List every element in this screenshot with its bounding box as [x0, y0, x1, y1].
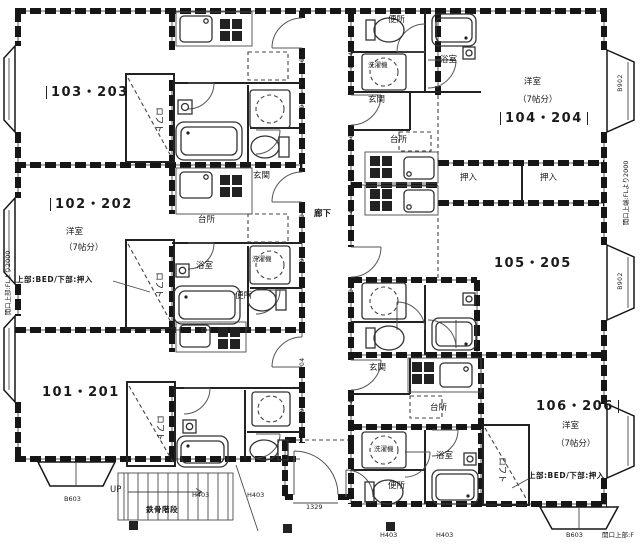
bathroom-label: 浴室 [436, 452, 453, 461]
bathtub [432, 318, 476, 350]
bathtub [177, 436, 228, 467]
foundation-post [283, 524, 292, 533]
opening-dim-0904: 0904 [300, 357, 306, 374]
unit-label-102-202: 102・202 [50, 198, 133, 211]
washing-machine [362, 283, 406, 319]
loft-label: ロフト [154, 107, 163, 133]
bathroom-label: 浴室 [440, 56, 457, 65]
opening-dim-0904: 0904 [349, 284, 355, 301]
bathroom-label: 浴室 [196, 262, 213, 271]
door-dim-h403: H403 [380, 532, 397, 539]
toilet-label: 便所 [388, 16, 405, 25]
bottom-right-note: 開口上部:F [602, 532, 634, 539]
bathtub [176, 122, 242, 160]
unit-label-101-201: 101・201 [42, 386, 120, 399]
toilet-label: 便所 [235, 292, 252, 301]
kitchen-sink [404, 157, 434, 179]
washing-machine [362, 54, 406, 90]
washer-label: 洗濯機 [252, 256, 272, 263]
water-heater [463, 47, 475, 59]
room-type-104: 洋室 [524, 78, 541, 87]
door-dim-h403: H403 [192, 492, 209, 499]
opening-dim-0904: 0904 [300, 399, 306, 416]
opening-dim-0904: 0904 [349, 209, 355, 226]
loft-label: ロフト [154, 272, 163, 298]
balcony-dim-b603: B603 [64, 496, 81, 503]
entry-width-1329: 1329 [306, 504, 323, 511]
opening-dim-0904: 0904 [349, 436, 355, 453]
stairs-label: 鉄骨階段 [146, 506, 178, 514]
kitchen-sink [180, 172, 212, 198]
water-heater [463, 293, 475, 305]
opening-dim-0904: 0904 [349, 129, 355, 146]
room-type-106: 洋室 [562, 422, 579, 431]
room-size-104: （7帖分） [518, 96, 557, 105]
right-wall-note: 開口上端:FLより2000 [623, 161, 630, 226]
opening-dim-0904: 0904 [349, 51, 355, 68]
stove [412, 362, 434, 384]
unit-label-105-205: 105・205 [494, 257, 572, 270]
opening-dim-0904: 0904 [300, 53, 306, 70]
opening-dim-0904: 0904 [300, 91, 306, 108]
water-heater [464, 453, 476, 465]
washing-machine [252, 392, 290, 426]
washer-label: 洗濯機 [374, 446, 394, 453]
washing-machine [250, 90, 290, 128]
door-dim-h403: H403 [436, 532, 453, 539]
wash-basin [178, 100, 192, 114]
opening-dim-0904: 0904 [300, 209, 306, 226]
unit-label-103-203: 103・203 [46, 86, 129, 99]
stove [370, 189, 392, 211]
room-size-106: （7帖分） [556, 440, 595, 449]
room-size-102: （7帖分） [64, 244, 103, 253]
washing-machine [250, 246, 290, 284]
entrance-label: 玄関 [253, 172, 270, 181]
corridor-label: 廊下 [314, 210, 331, 219]
balcony-dim-b603: B603 [566, 532, 583, 539]
unit-label-104-204: 104・204 [500, 112, 588, 125]
closet-label: 押入 [460, 174, 477, 183]
loft-note-106: 上部:BED/下部:押入 [528, 472, 605, 480]
loft-note-102: 上部:BED/下部:押入 [16, 276, 93, 284]
loft-label: ロフト [155, 415, 164, 441]
bathtub [174, 286, 240, 324]
stove [370, 156, 392, 178]
closet-label: 押入 [540, 174, 557, 183]
left-wall-note: 開口上部:FLより2000 [5, 251, 12, 316]
loft-label: ロフト [497, 457, 506, 483]
up-arrow [128, 489, 202, 496]
stairs-up-label: UP [110, 486, 121, 495]
opening-dim-0904: 0904 [300, 249, 306, 266]
kitchen-sink [440, 363, 472, 387]
washer-label: 洗濯機 [368, 62, 388, 69]
stove [220, 175, 242, 197]
window-dim-b902: B902 [618, 74, 624, 92]
entrance-label: 玄関 [368, 96, 385, 105]
entrance-label: 玄関 [369, 364, 386, 373]
room-type-102: 洋室 [66, 228, 83, 237]
kitchen-label: 台所 [430, 404, 447, 413]
bathtub [432, 470, 478, 504]
opening-dim-0904: 0904 [349, 399, 355, 416]
toilet-label: 便所 [388, 482, 405, 491]
kitchen-label: 台所 [390, 136, 407, 145]
floor-plan-sheet: 103・203 102・202 101・201 104・204 105・205 … [0, 0, 644, 545]
floor-plan-drawing [0, 0, 644, 545]
door-dim-h403: H403 [247, 492, 264, 499]
partitions [172, 11, 522, 504]
foundation-post [386, 522, 395, 531]
kitchen-label: 台所 [198, 216, 215, 225]
foundation-post [129, 521, 138, 530]
window-dim-b902: B902 [618, 272, 624, 290]
toilet [366, 326, 404, 350]
kitchen-sink [180, 16, 212, 42]
unit-label-106-206: 106・206 [536, 400, 619, 413]
wash-basin [183, 420, 196, 433]
toilet [251, 136, 289, 158]
wash-basin [176, 264, 189, 277]
stove [220, 19, 242, 41]
kitchen-sink [404, 190, 434, 212]
